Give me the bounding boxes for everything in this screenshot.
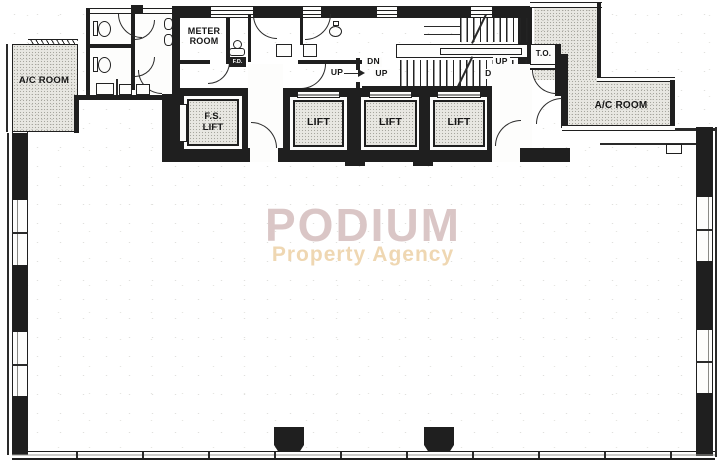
wall xyxy=(300,14,303,45)
wall xyxy=(530,64,557,69)
counter-fixture xyxy=(96,83,114,95)
lift-1-label: LIFT xyxy=(293,117,344,129)
wall xyxy=(597,77,675,82)
pier xyxy=(424,427,454,452)
ac-room-left xyxy=(12,44,78,132)
transom xyxy=(12,232,28,234)
pier xyxy=(274,427,304,452)
stair-landing-line xyxy=(424,34,460,35)
basin xyxy=(229,48,245,56)
door-arc xyxy=(253,15,277,39)
lift-3-label: LIFT xyxy=(433,117,485,129)
td-label: T.O. xyxy=(530,50,557,59)
door-arc xyxy=(208,62,230,84)
wc-bowl xyxy=(98,57,111,73)
stair-handrail-inner xyxy=(440,48,522,55)
stair-flight-upper xyxy=(460,18,528,42)
transom xyxy=(696,361,713,363)
wall xyxy=(76,95,164,100)
pier xyxy=(696,127,713,197)
pier xyxy=(696,261,713,330)
wall xyxy=(74,95,79,133)
door-opening xyxy=(492,148,520,162)
wc-cistern xyxy=(333,21,339,26)
transom xyxy=(12,364,28,366)
duct-box xyxy=(276,44,292,57)
stair-up-left: UP xyxy=(373,69,390,79)
stair-landing-line xyxy=(424,26,460,27)
stair-dn-left: DN xyxy=(365,57,382,67)
up-arrow xyxy=(344,73,358,75)
lift-1-door xyxy=(297,91,340,98)
wall xyxy=(116,79,118,95)
hatch-strip xyxy=(28,39,78,45)
wc-bowl xyxy=(329,26,342,37)
column-notch xyxy=(666,144,682,154)
wall xyxy=(248,14,251,62)
door-arc xyxy=(301,64,326,89)
pier xyxy=(12,265,28,332)
duct-box xyxy=(303,44,317,57)
fs-lift-label: F.S. LIFT xyxy=(197,112,229,133)
louver-vent xyxy=(376,6,398,18)
ledge-line xyxy=(600,143,698,145)
wall xyxy=(131,5,143,14)
meter-room-label: METER ROOM xyxy=(182,26,226,46)
transom xyxy=(696,229,713,231)
wall xyxy=(345,162,365,166)
pier xyxy=(696,393,713,455)
wall xyxy=(6,44,8,132)
wall xyxy=(178,60,210,64)
wall xyxy=(597,2,601,82)
louver-vent xyxy=(470,6,493,18)
door-opening xyxy=(250,148,278,162)
counter-fixture xyxy=(119,84,132,95)
door-arc xyxy=(305,14,331,40)
floor-plan: PODIUM Property Agency A/C ROOM METER RO… xyxy=(0,0,726,467)
wall xyxy=(90,44,133,48)
wall xyxy=(561,54,568,128)
curtain-wall-mullion xyxy=(715,127,717,457)
lift-2-door xyxy=(369,91,412,98)
fd-label: F.D. xyxy=(229,59,246,65)
window-wall-bottom xyxy=(12,451,715,460)
lift-2-label: LIFT xyxy=(364,117,417,129)
wall xyxy=(562,125,675,131)
wall xyxy=(172,6,180,94)
lift-3-door xyxy=(437,91,481,98)
lobby-up-label: UP xyxy=(329,68,345,78)
ac-room-right-label: A/C ROOM xyxy=(575,100,667,111)
watermark-subtitle: Property Agency xyxy=(0,243,726,267)
wall xyxy=(670,80,675,128)
door-arc xyxy=(532,70,556,94)
door-arc xyxy=(536,98,562,124)
pier xyxy=(12,396,28,454)
wall xyxy=(530,2,602,8)
fs-lift-door xyxy=(179,104,187,142)
wc-bowl xyxy=(98,21,111,37)
up-arrow-head xyxy=(358,69,365,77)
pier xyxy=(12,133,28,200)
curtain-wall-mullion xyxy=(7,133,9,455)
ac-room-left-label: A/C ROOM xyxy=(10,76,78,87)
counter-fixture xyxy=(136,84,150,95)
wall xyxy=(413,162,433,166)
